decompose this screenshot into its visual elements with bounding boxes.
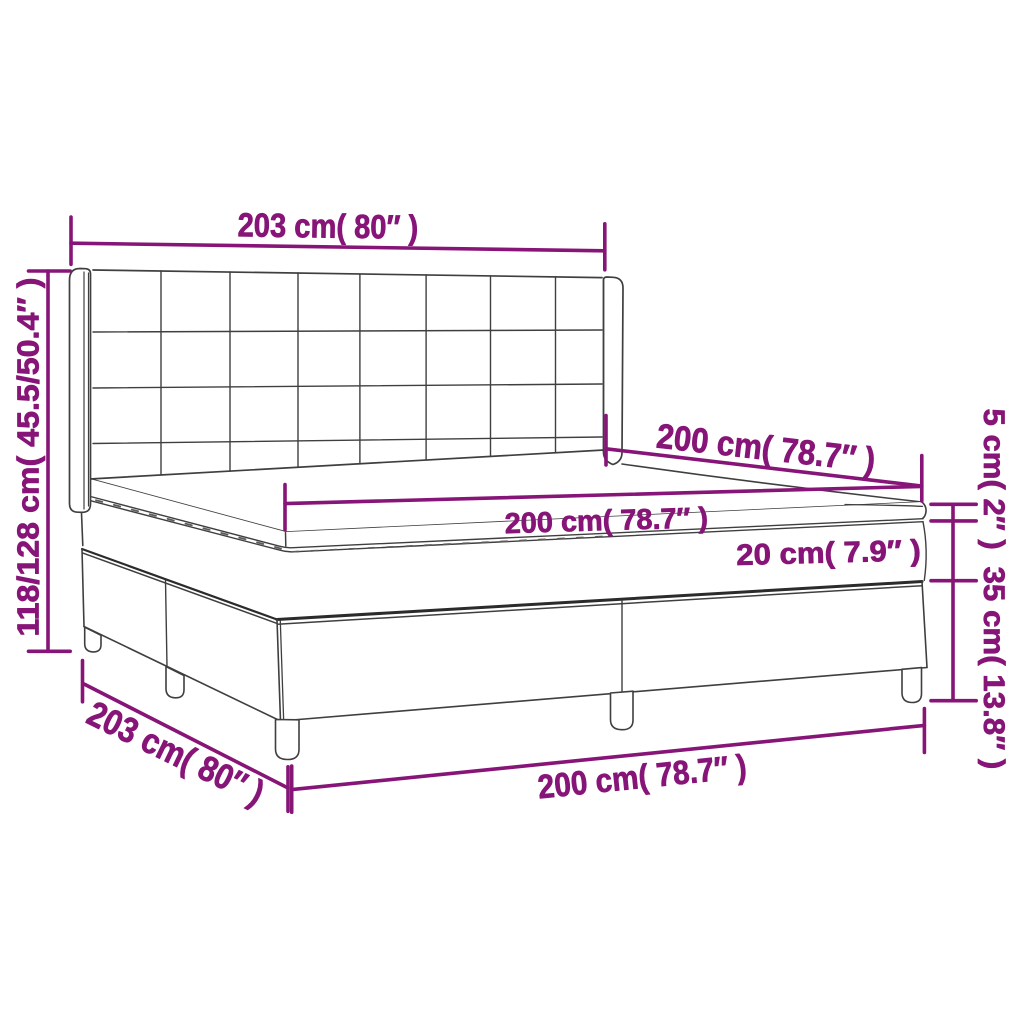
svg-text:203 cm( 80″ ): 203 cm( 80″ ) xyxy=(237,206,418,246)
svg-text:118/128 cm( 45.5/50.4″ ): 118/128 cm( 45.5/50.4″ ) xyxy=(11,278,45,637)
svg-text:5 cm( 2″ ): 5 cm( 2″ ) xyxy=(977,409,1010,550)
svg-text:35 cm( 13.8″ ): 35 cm( 13.8″ ) xyxy=(977,567,1010,770)
svg-text:20 cm( 7.9″ ): 20 cm( 7.9″ ) xyxy=(736,535,921,572)
svg-text:200 cm( 78.7″ ): 200 cm( 78.7″ ) xyxy=(504,502,708,540)
